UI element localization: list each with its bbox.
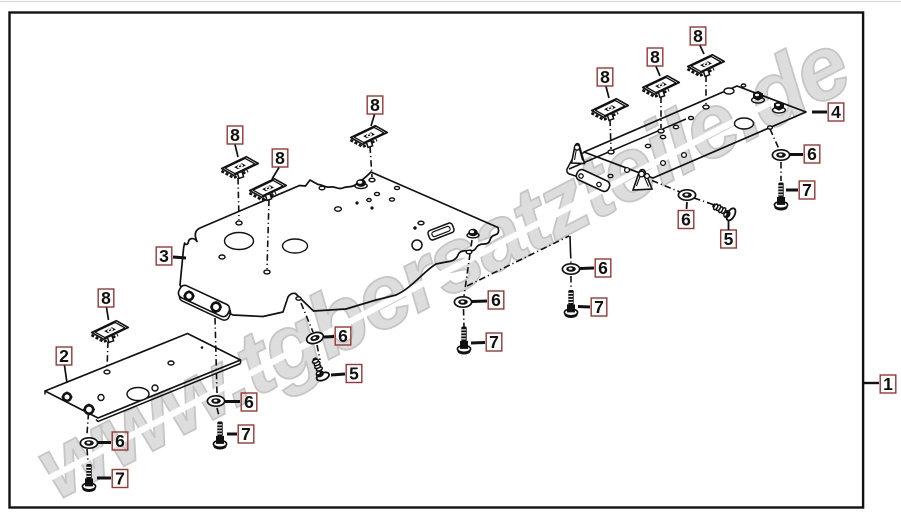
svg-text:8: 8 [693,26,703,46]
svg-text:7: 7 [594,297,604,317]
svg-text:6: 6 [244,392,254,412]
svg-text:8: 8 [275,148,285,168]
svg-text:8: 8 [230,125,240,145]
svg-text:6: 6 [115,431,125,451]
svg-text:3: 3 [159,246,169,266]
svg-text:8: 8 [101,288,111,308]
svg-text:8: 8 [650,47,660,67]
svg-text:7: 7 [802,180,812,200]
svg-text:5: 5 [724,229,734,249]
svg-text:4: 4 [831,102,841,122]
svg-text:7: 7 [241,424,251,444]
svg-text:6: 6 [807,144,817,164]
svg-text:2: 2 [59,346,69,366]
svg-text:1: 1 [883,374,893,394]
svg-text:7: 7 [489,332,499,352]
svg-text:6: 6 [491,290,501,310]
svg-text:6: 6 [338,326,348,346]
svg-text:6: 6 [598,258,608,278]
svg-text:www.tgbersatzteile.de: www.tgbersatzteile.de [20,15,864,519]
svg-text:7: 7 [115,469,125,489]
svg-text:8: 8 [600,67,610,87]
svg-text:6: 6 [681,210,691,230]
svg-text:8: 8 [370,95,380,115]
svg-text:5: 5 [349,364,359,384]
